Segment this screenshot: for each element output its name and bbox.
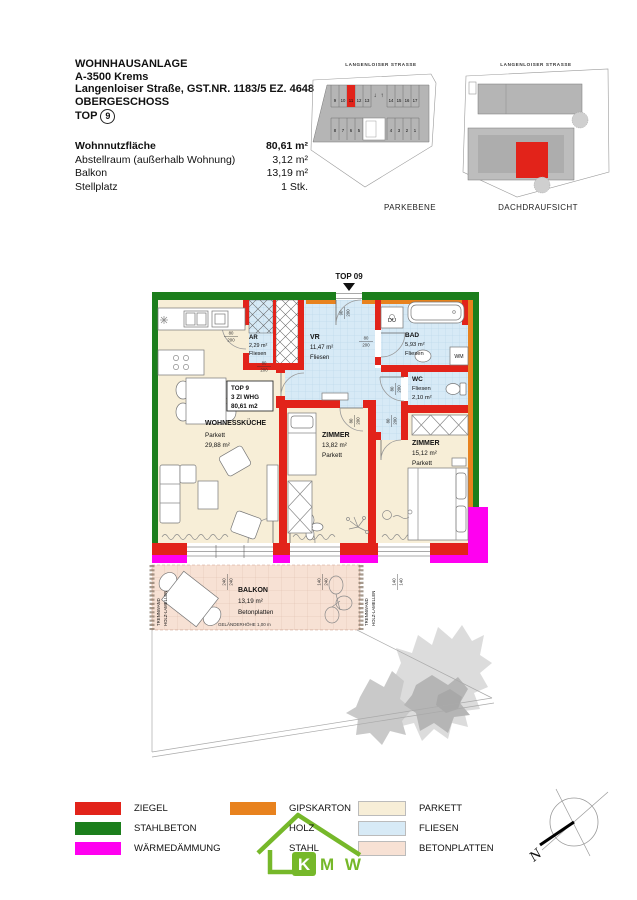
partition-label: HOLZ-LAMELLEN	[163, 591, 168, 626]
gipskarton-swatch	[230, 802, 276, 815]
room-area: 5,93 m²	[405, 342, 425, 348]
legend-item: HOLZ	[230, 822, 351, 835]
ar-shaft-hatch	[249, 300, 273, 333]
room-floor: Fliesen	[249, 351, 266, 357]
parking-space-number: 14	[389, 98, 394, 103]
door-dim: 200	[346, 309, 351, 317]
room-floor: Betonplatten	[238, 609, 274, 616]
door-dim: 200	[362, 343, 370, 348]
room-name: ZIMMER	[322, 432, 350, 439]
parking-space-number: 12	[357, 98, 362, 103]
parking-space-number: 11	[349, 98, 354, 103]
row-label: Wohnnutzfläche	[75, 140, 156, 154]
partition-label: TRENNWAND	[156, 598, 161, 626]
tree-icon	[534, 177, 550, 193]
legend-label: WÄRMEDÄMMUNG	[134, 843, 221, 854]
site-plan-roof-view: LANGENLOISER STRASSE	[458, 56, 618, 204]
toilet	[446, 384, 460, 395]
lamp-icon	[160, 316, 168, 324]
garden-tree	[346, 625, 492, 745]
kitchen-hob-counter	[158, 350, 204, 375]
door-dim: 80	[262, 361, 267, 366]
sideboard	[267, 465, 278, 521]
legend-label: BETONPLATTEN	[419, 843, 494, 854]
compass: N	[528, 786, 620, 870]
room-name: AR	[249, 335, 258, 341]
window-dim: 240	[229, 578, 234, 586]
room-floor: Parkett	[412, 460, 432, 467]
room-floor: Fliesen	[412, 386, 431, 392]
wardrobe	[288, 481, 312, 533]
room-name: BAD	[405, 332, 419, 339]
parking-space-number: 13	[365, 98, 370, 103]
project-floor: OBERGESCHOSS	[75, 96, 314, 109]
stahl-swatch	[230, 842, 276, 855]
ziegel-swatch	[75, 802, 121, 815]
room-name: BALKON	[238, 587, 268, 594]
tree-icon	[572, 112, 588, 128]
door-dim: 200	[260, 368, 268, 373]
holz-swatch	[230, 822, 276, 835]
ramp-down-arrow-icon: ↓	[374, 93, 377, 99]
waermedaemmung-swatch	[75, 842, 121, 855]
legend-item: STAHL	[230, 842, 351, 855]
room-area: 15,12 m²	[412, 450, 437, 457]
highlighted-unit	[516, 142, 548, 178]
sofa	[160, 465, 180, 523]
room-area: 13,19 m²	[238, 598, 263, 605]
street-label: LANGENLOISER STRASSE	[500, 62, 571, 67]
project-address: Langenloiser Straße, GST.NR. 1183/5 EZ. …	[75, 83, 314, 96]
parking-space-number: 17	[413, 98, 418, 103]
table-row: Balkon 13,19 m²	[75, 167, 308, 181]
legend-column-1: ZIEGEL STAHLBETON WÄRMEDÄMMUNG	[75, 802, 221, 862]
room-area: 13,82 m²	[322, 442, 347, 449]
project-title: WOHNHAUSANLAGE	[75, 58, 314, 71]
row-value: 80,61 m²	[266, 140, 308, 154]
row-label: Abstellraum (außerhalb Wohnung)	[75, 154, 235, 168]
legend-label: FLIESEN	[419, 823, 459, 834]
unit-box-line: TOP 9	[231, 385, 249, 392]
room-floor: Parkett	[205, 432, 225, 439]
partition-label: HOLZ-LAMELLEN	[371, 591, 376, 626]
stair-core	[363, 118, 385, 140]
legend-label: GIPSKARTON	[289, 803, 351, 814]
room-name: VR	[310, 334, 320, 341]
floor-plan-page: WOHNHAUSANLAGE A-3500 Krems Langenloiser…	[0, 0, 637, 900]
site-detail	[469, 82, 476, 94]
unit-number-row: TOP 9	[75, 109, 314, 124]
door-dim: 80	[386, 418, 391, 423]
roof-view-caption: DACHDRAUFSICHT	[483, 203, 593, 212]
shower-label: DU	[388, 318, 396, 324]
legend-item: ZIEGEL	[75, 802, 221, 815]
legend-label: STAHL	[289, 843, 319, 854]
doormat	[322, 393, 348, 400]
parking-space-number: 15	[397, 98, 402, 103]
door-dim: 90	[339, 310, 344, 315]
legend-item: WÄRMEDÄMMUNG	[75, 842, 221, 855]
ramp-up-arrow-icon: ↑	[381, 93, 384, 99]
document-header: WOHNHAUSANLAGE A-3500 Krems Langenloiser…	[75, 58, 314, 124]
room-name: WOHNESSKÜCHE	[205, 418, 266, 427]
legend-label: HOLZ	[289, 823, 314, 834]
street-label: LANGENLOISER STRASSE	[345, 62, 416, 67]
unit-box-line: 3 ZI WHG	[231, 394, 259, 401]
table-row: Abstellraum (außerhalb Wohnung) 3,12 m²	[75, 154, 308, 168]
table-row: Stellplatz 1 Stk.	[75, 181, 308, 195]
room-name: ZIMMER	[412, 440, 440, 447]
window-dim: 140	[392, 578, 397, 586]
unit-prefix: TOP	[75, 110, 97, 123]
row-label: Stellplatz	[75, 181, 118, 195]
stahlbeton-swatch	[75, 822, 121, 835]
site-plan-parking-level: LANGENLOISER STRASSE 9 10 11 12 13	[303, 56, 460, 204]
room-area: 2,29 m²	[249, 343, 267, 349]
row-value: 13,19 m²	[267, 167, 308, 181]
coffee-table	[198, 481, 218, 509]
legend-item: STAHLBETON	[75, 822, 221, 835]
legend-label: STAHLBETON	[134, 823, 196, 834]
door-dim: 80	[229, 331, 234, 336]
parking-space-number: 10	[341, 98, 346, 103]
room-floor: Fliesen	[310, 355, 329, 361]
area-table: Wohnnutzfläche 80,61 m² Abstellraum (auß…	[75, 140, 308, 194]
unit-number-badge: 9	[100, 109, 115, 124]
parking-level-caption: PARKEBENE	[355, 203, 465, 212]
window-dim: 240	[222, 578, 227, 586]
row-label: Balkon	[75, 167, 107, 181]
table-row: Wohnnutzfläche 80,61 m²	[75, 140, 308, 154]
legend-label: PARKETT	[419, 803, 462, 814]
room-name: WC	[412, 376, 423, 383]
door-dim: 200	[393, 417, 398, 425]
window-dim: 140	[399, 578, 404, 586]
window-dim: 240	[324, 578, 329, 586]
entrance-label: TOP 09	[335, 272, 363, 281]
legend-column-2: GIPSKARTON HOLZ STAHL	[230, 802, 351, 862]
door-dim: 80	[364, 336, 369, 341]
nightstand	[452, 458, 466, 466]
room-area: 29,88 m²	[205, 442, 230, 449]
door-dim: 80	[390, 386, 395, 391]
railing-height-label: GELÄNDERHÖHE 1,00 m	[218, 621, 271, 627]
unit-info-box: TOP 9 3 ZI WHG 80,61 m2	[227, 381, 273, 411]
north-needle	[540, 822, 574, 845]
legend-label: ZIEGEL	[134, 803, 168, 814]
door-dim: 200	[397, 385, 402, 393]
door-dim: 200	[356, 417, 361, 425]
window-dim: 140	[317, 578, 322, 586]
room-floor: Parkett	[322, 452, 342, 459]
room-area: 2,10 m²	[412, 395, 432, 401]
door-dim: 80	[349, 418, 354, 423]
main-floor-plan: TOP 09	[60, 265, 580, 770]
parking-space-number: 16	[405, 98, 410, 103]
project-city: A-3500 Krems	[75, 71, 314, 84]
dining-table	[186, 378, 226, 424]
partition-label: TRENNWAND	[364, 598, 369, 626]
highlighted-parking-space	[347, 85, 355, 107]
shaft-hatch	[276, 300, 298, 368]
room-floor: Fliesen	[405, 351, 424, 357]
upper-building	[478, 84, 582, 114]
entrance-arrow-icon	[343, 283, 355, 291]
washing-machine-label: WM	[454, 354, 463, 360]
unit-box-line: 80,61 m2	[231, 403, 258, 410]
door-dim: 200	[227, 338, 235, 343]
legend-item: GIPSKARTON	[230, 802, 351, 815]
room-area: 11,47 m²	[310, 345, 333, 351]
